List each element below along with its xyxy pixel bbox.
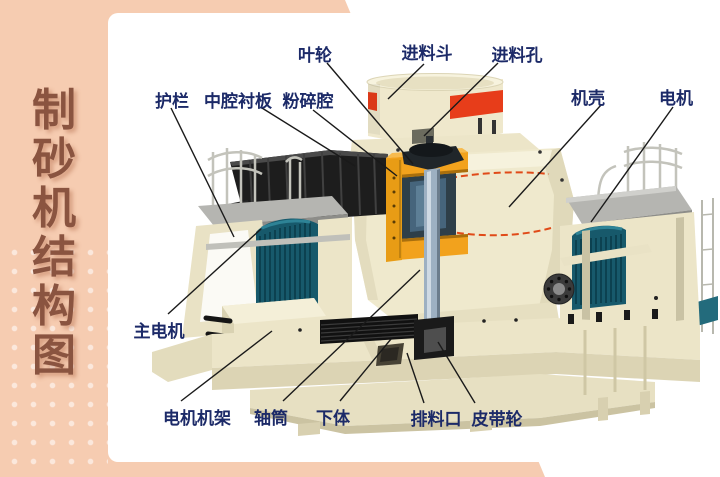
label-motor-frame: 电机机架 bbox=[163, 404, 231, 429]
title-char: 机 bbox=[0, 184, 108, 233]
flange-part bbox=[544, 274, 574, 304]
title-char: 结 bbox=[0, 233, 108, 282]
title-char: 构 bbox=[0, 282, 108, 331]
motor-part bbox=[572, 226, 626, 310]
label-impeller: 叶轮 bbox=[298, 41, 332, 66]
label-motor: 电机 bbox=[659, 84, 693, 109]
belt-pulley-part bbox=[414, 316, 454, 360]
label-main-motor: 主电机 bbox=[134, 317, 185, 342]
label-machine-shell: 机壳 bbox=[571, 84, 605, 109]
label-middle-chamber-liner: 中腔衬板 bbox=[204, 87, 272, 112]
title-char: 制 bbox=[0, 86, 108, 135]
leader-line-guardrail bbox=[171, 108, 234, 237]
title-char: 图 bbox=[0, 331, 108, 380]
machine-illustration bbox=[0, 0, 720, 477]
title-char: 砂 bbox=[0, 135, 108, 184]
page: 制 砂 机 结 构 图 bbox=[0, 0, 720, 477]
label-feed-hole: 进料孔 bbox=[492, 41, 543, 66]
right-tower-part bbox=[697, 198, 718, 334]
label-lower-body: 下体 bbox=[316, 404, 350, 429]
label-belt-pulley: 皮带轮 bbox=[472, 405, 523, 430]
label-discharge-port: 排料口 bbox=[411, 405, 462, 430]
label-crushing-chamber: 粉碎腔 bbox=[283, 87, 334, 112]
page-title: 制 砂 机 结 构 图 bbox=[0, 86, 108, 380]
label-feed-hopper: 进料斗 bbox=[402, 39, 453, 64]
label-guardrail: 护栏 bbox=[155, 87, 189, 112]
label-shaft-tube: 轴筒 bbox=[254, 404, 288, 429]
